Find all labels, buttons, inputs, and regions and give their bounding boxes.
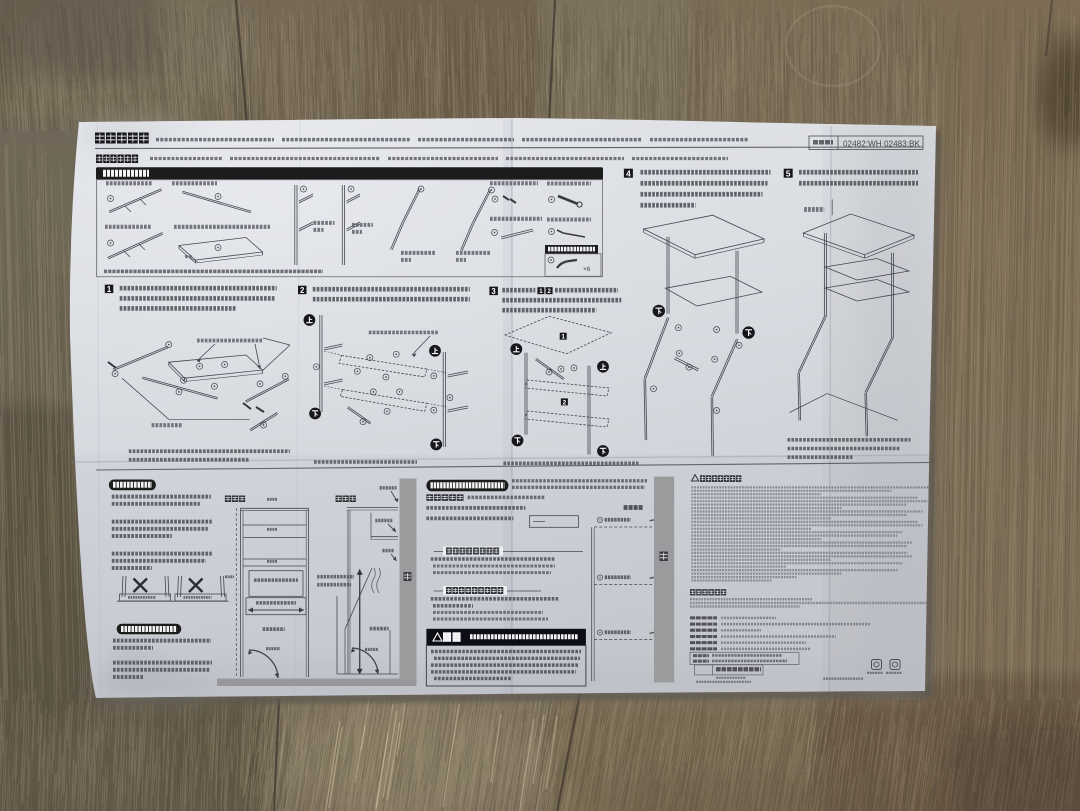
svg-text:1: 1 — [107, 285, 112, 294]
svg-text:1: 1 — [539, 288, 543, 295]
svg-text:2: 2 — [547, 288, 551, 295]
svg-text:5: 5 — [786, 168, 791, 178]
svg-text:2: 2 — [563, 399, 567, 406]
svg-text:×6: ×6 — [583, 266, 591, 273]
svg-text:2: 2 — [300, 286, 305, 295]
svg-text:3: 3 — [491, 287, 496, 296]
svg-text:4: 4 — [626, 168, 631, 178]
svg-text:1: 1 — [561, 334, 565, 341]
